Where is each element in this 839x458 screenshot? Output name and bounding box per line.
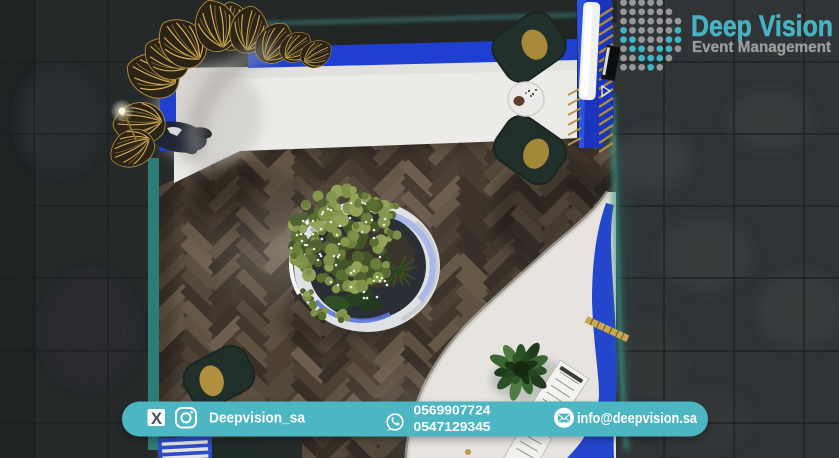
svg-text:Event Management: Event Management bbox=[692, 39, 831, 56]
svg-text:0569907724: 0569907724 bbox=[414, 403, 492, 418]
svg-text:info@deepvision.sa: info@deepvision.sa bbox=[577, 411, 698, 427]
svg-text:X: X bbox=[151, 410, 162, 428]
svg-text:0547129345: 0547129345 bbox=[414, 419, 491, 434]
svg-text:Deepvision_sa: Deepvision_sa bbox=[209, 411, 306, 427]
